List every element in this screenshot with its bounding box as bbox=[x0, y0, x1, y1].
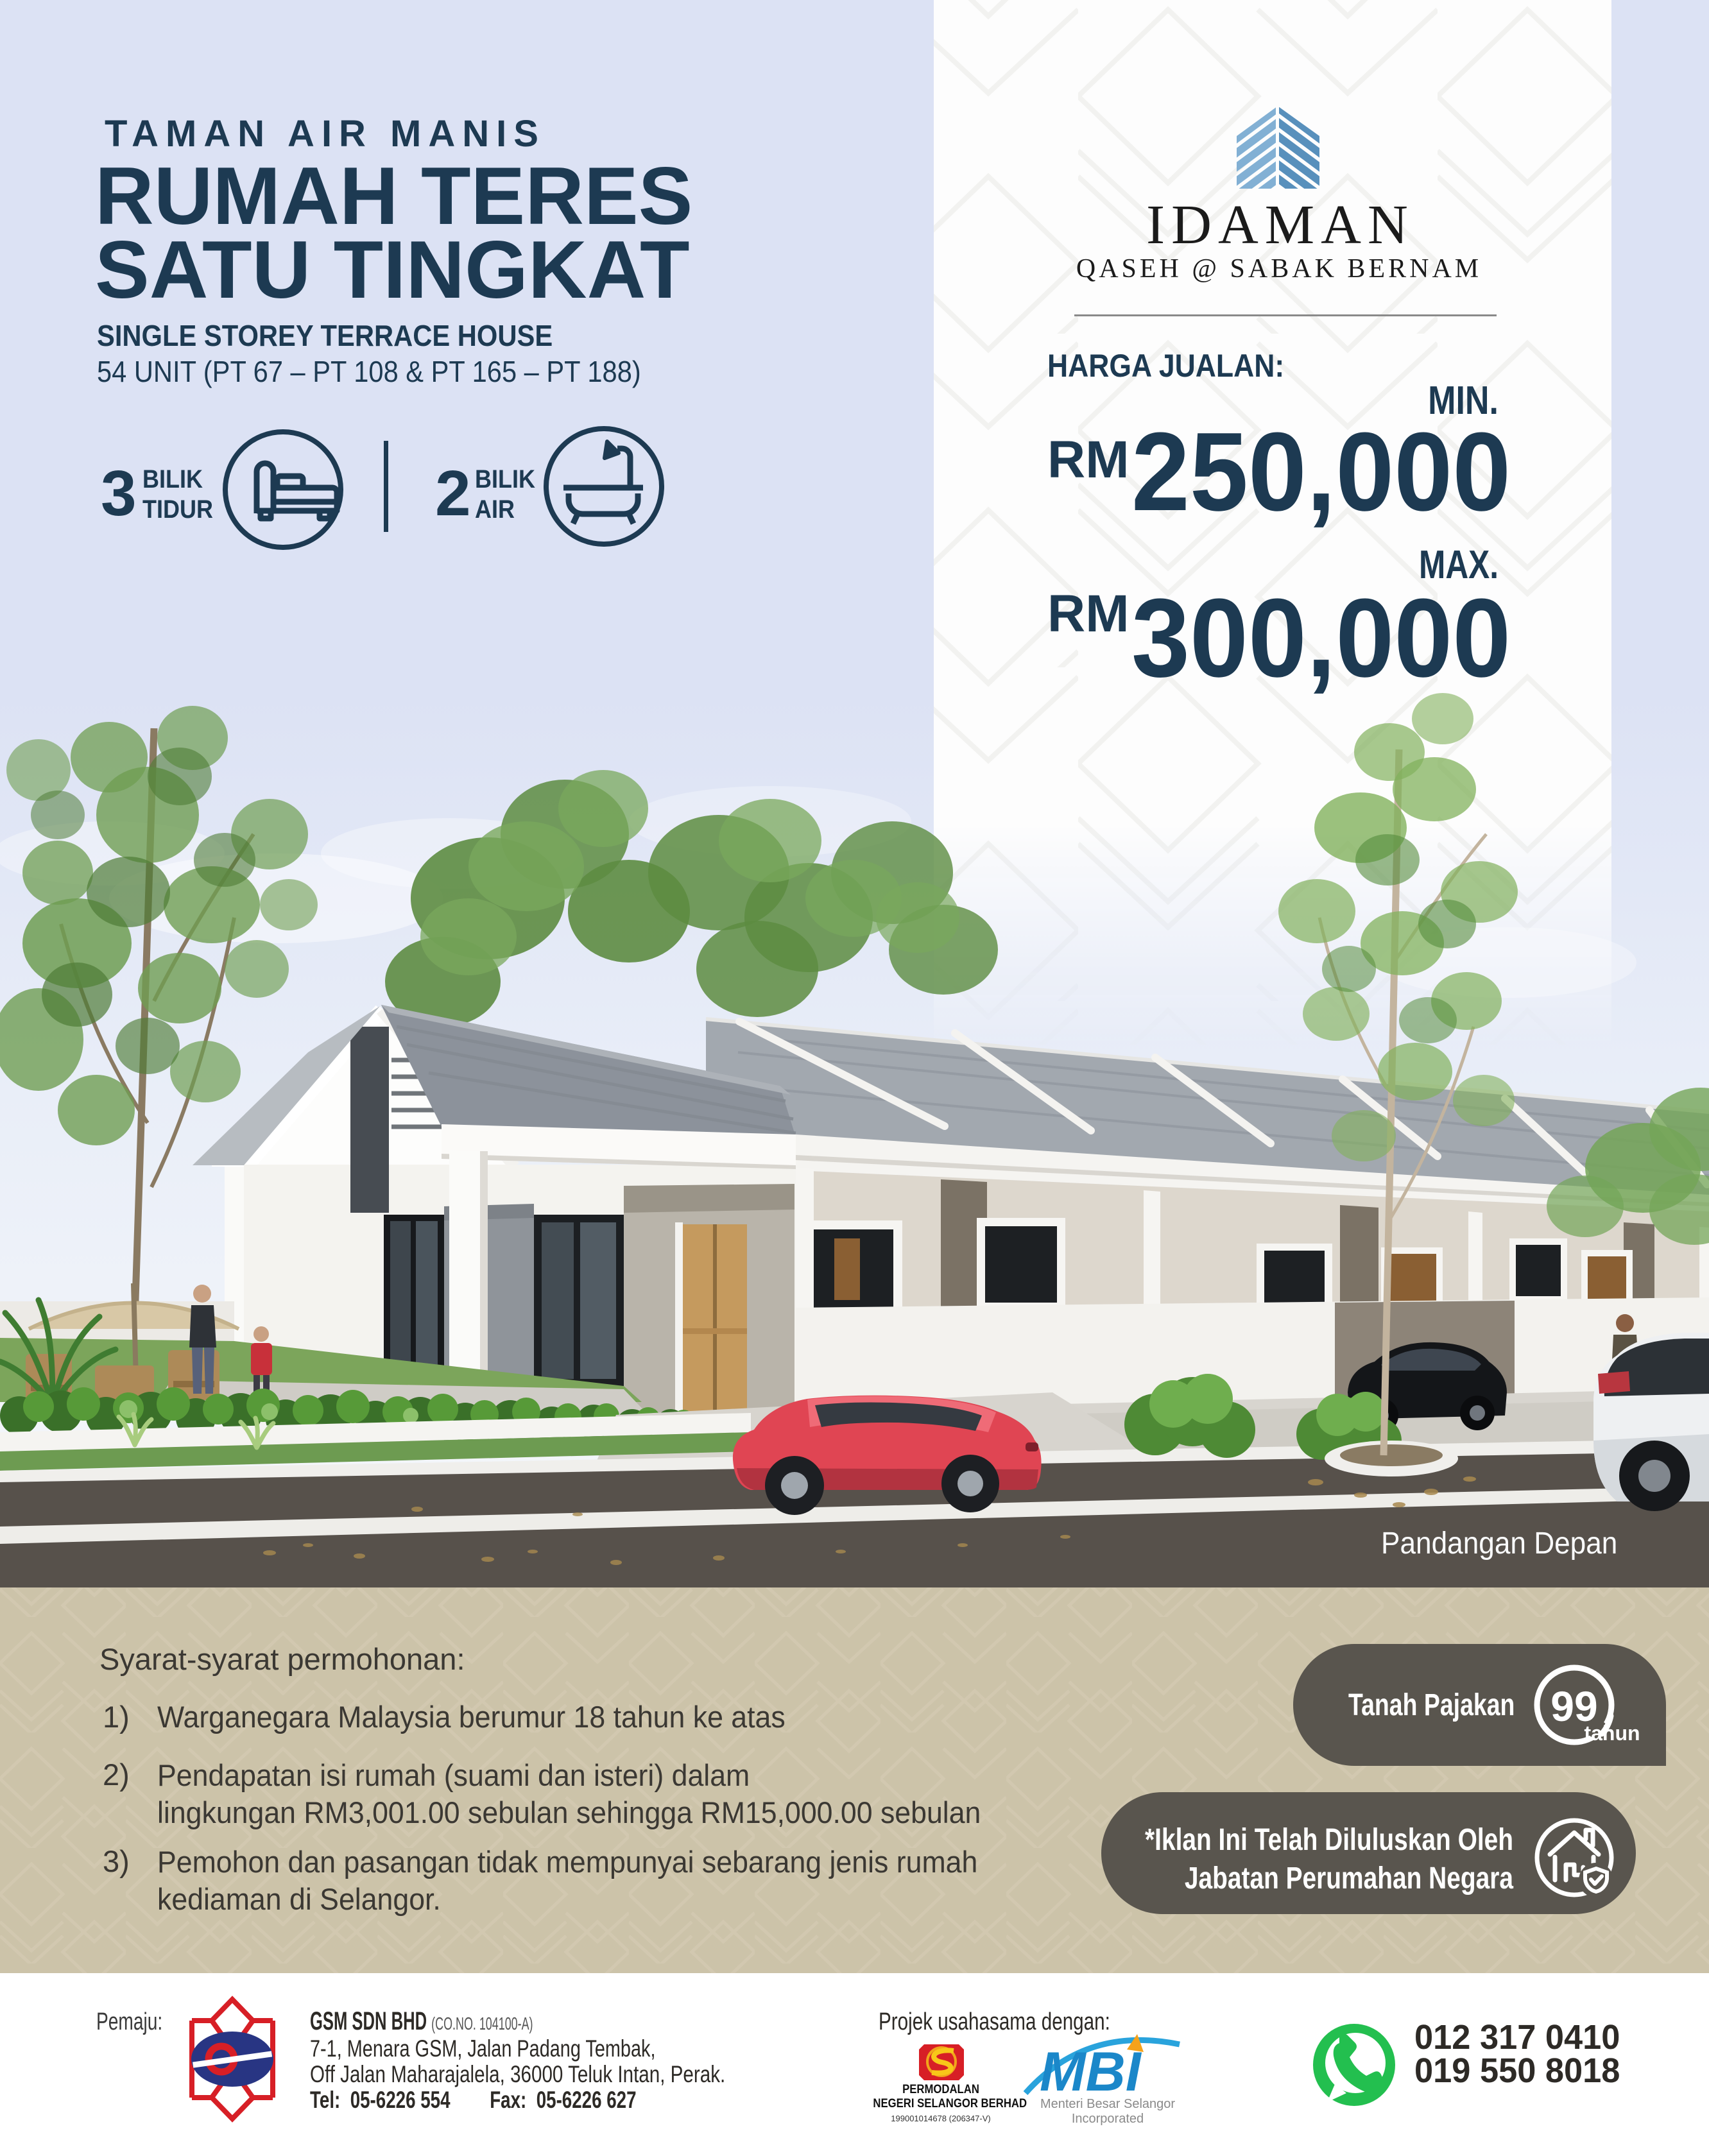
svg-text:MBI: MBI bbox=[1040, 2041, 1142, 2103]
svg-text:tahun: tahun bbox=[1584, 1722, 1640, 1745]
